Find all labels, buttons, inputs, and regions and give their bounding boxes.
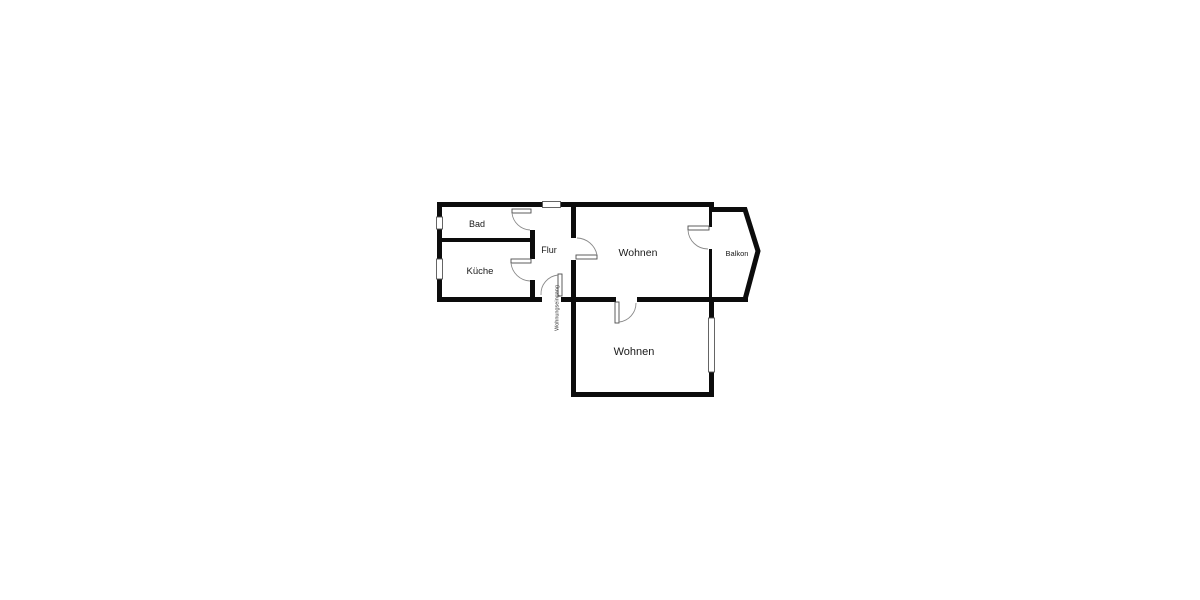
wall-wohnen-bottom-left — [571, 260, 576, 397]
door-leaf-wohnen-top — [576, 255, 597, 259]
wall-flur-west-segment-2 — [530, 280, 535, 297]
door-leaf-wohnen-bottom — [615, 302, 619, 323]
door-arc-balkon — [688, 230, 708, 249]
room-label-kueche: Küche — [467, 266, 494, 277]
wall-wohnen-bottom-bottom — [571, 392, 714, 397]
room-label-wohnen-bottom: Wohnen — [614, 346, 655, 358]
room-label-bad: Bad — [469, 219, 485, 229]
floor-plan-drawing: Bad Küche Flur Wohnen Balkon Wohnen Wohn… — [0, 0, 1200, 600]
wall-bad-kueche-divider — [442, 238, 535, 242]
door-leaf-balkon — [688, 226, 709, 230]
wall-top — [437, 202, 714, 207]
room-label-wohnen-top: Wohnen — [619, 247, 658, 259]
window-wohnen-bottom — [709, 318, 715, 372]
entrance-label: Wohnungseingang — [555, 285, 561, 331]
window-flur — [543, 202, 561, 208]
floor-plan-page: Bad Küche Flur Wohnen Balkon Wohnen Wohn… — [0, 0, 1200, 600]
door-arc-bad — [512, 213, 530, 230]
wall-flur-east-segment-1 — [571, 207, 576, 238]
window-bad — [437, 217, 443, 229]
door-leaf-bad — [512, 209, 531, 213]
door-arc-wohnen-top — [577, 238, 597, 255]
wall-flur-west-segment-1 — [530, 230, 535, 259]
wall-bottom-main-segment-2 — [561, 297, 616, 302]
room-label-balkon: Balkon — [726, 249, 749, 258]
window-kueche — [437, 259, 443, 279]
door-leaf-kueche — [511, 259, 531, 263]
wall-bottom-main-segment-1 — [437, 297, 542, 302]
door-arc-kueche — [511, 263, 530, 281]
room-label-flur: Flur — [541, 245, 557, 255]
door-arc-wohnen-bottom — [619, 303, 636, 322]
